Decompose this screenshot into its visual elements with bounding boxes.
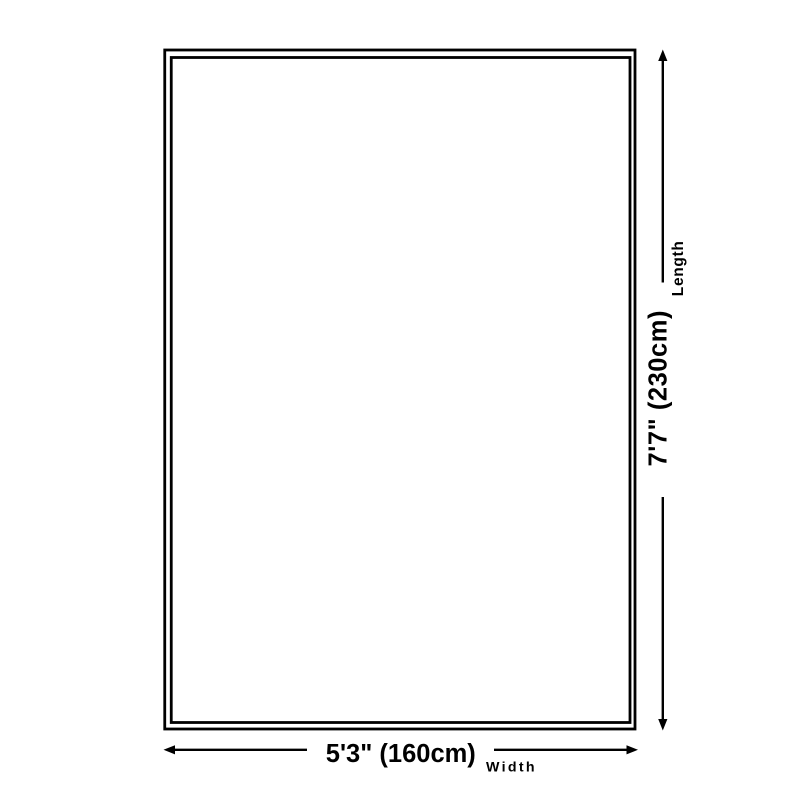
svg-text:5'3" (160cm): 5'3" (160cm) (326, 740, 476, 768)
svg-text:Length: Length (670, 241, 687, 296)
svg-text:7'7" (230cm): 7'7" (230cm) (645, 311, 673, 467)
svg-text:Width: Width (486, 759, 535, 775)
